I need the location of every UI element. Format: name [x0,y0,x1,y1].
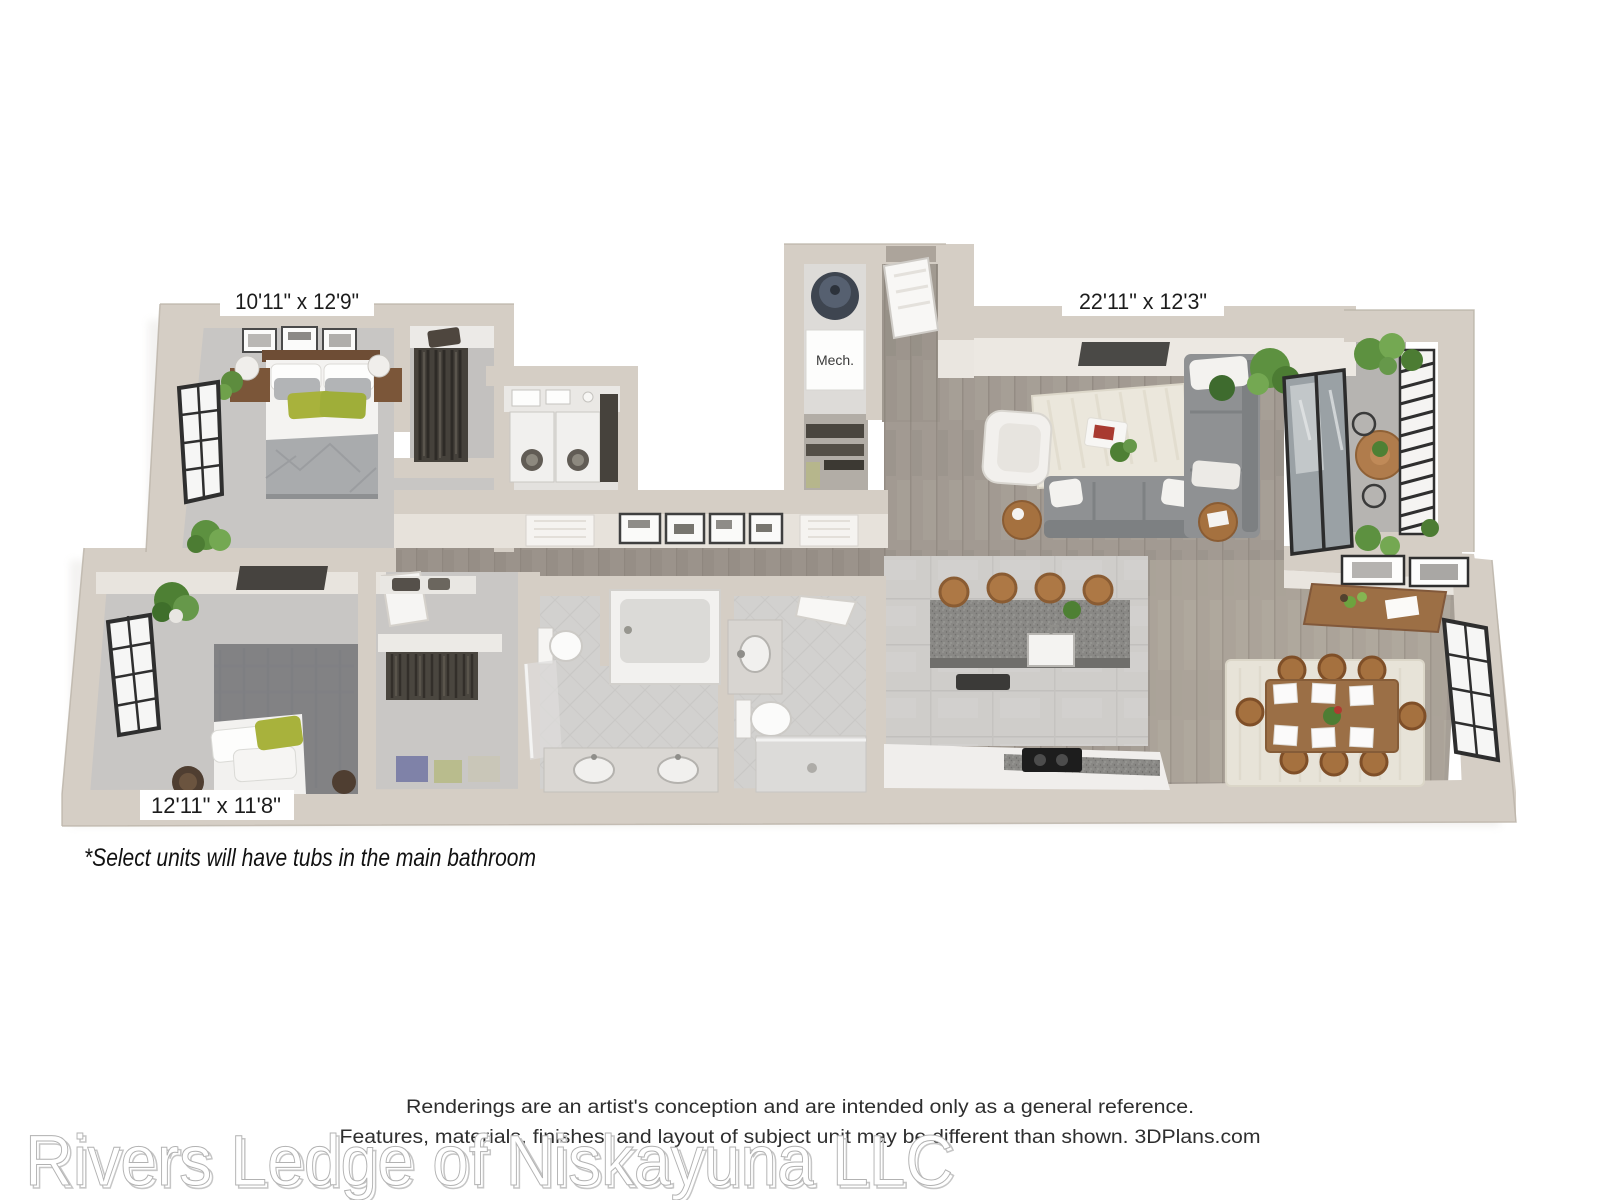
svg-text:22'11" x 12'3": 22'11" x 12'3" [1079,289,1207,314]
svg-text:Mech.: Mech. [816,352,854,368]
svg-text:10'11" x 12'9": 10'11" x 12'9" [235,289,359,314]
svg-text:Renderings are an artist's con: Renderings are an artist's conception an… [406,1097,1194,1118]
svg-text:Rivers Ledge of Niskayuna LLC: Rivers Ledge of Niskayuna LLC [25,1122,953,1200]
svg-text:12'11" x 11'8": 12'11" x 11'8" [151,793,281,818]
svg-text:*Select units will have tubs i: *Select units will have tubs in the main… [84,844,536,872]
